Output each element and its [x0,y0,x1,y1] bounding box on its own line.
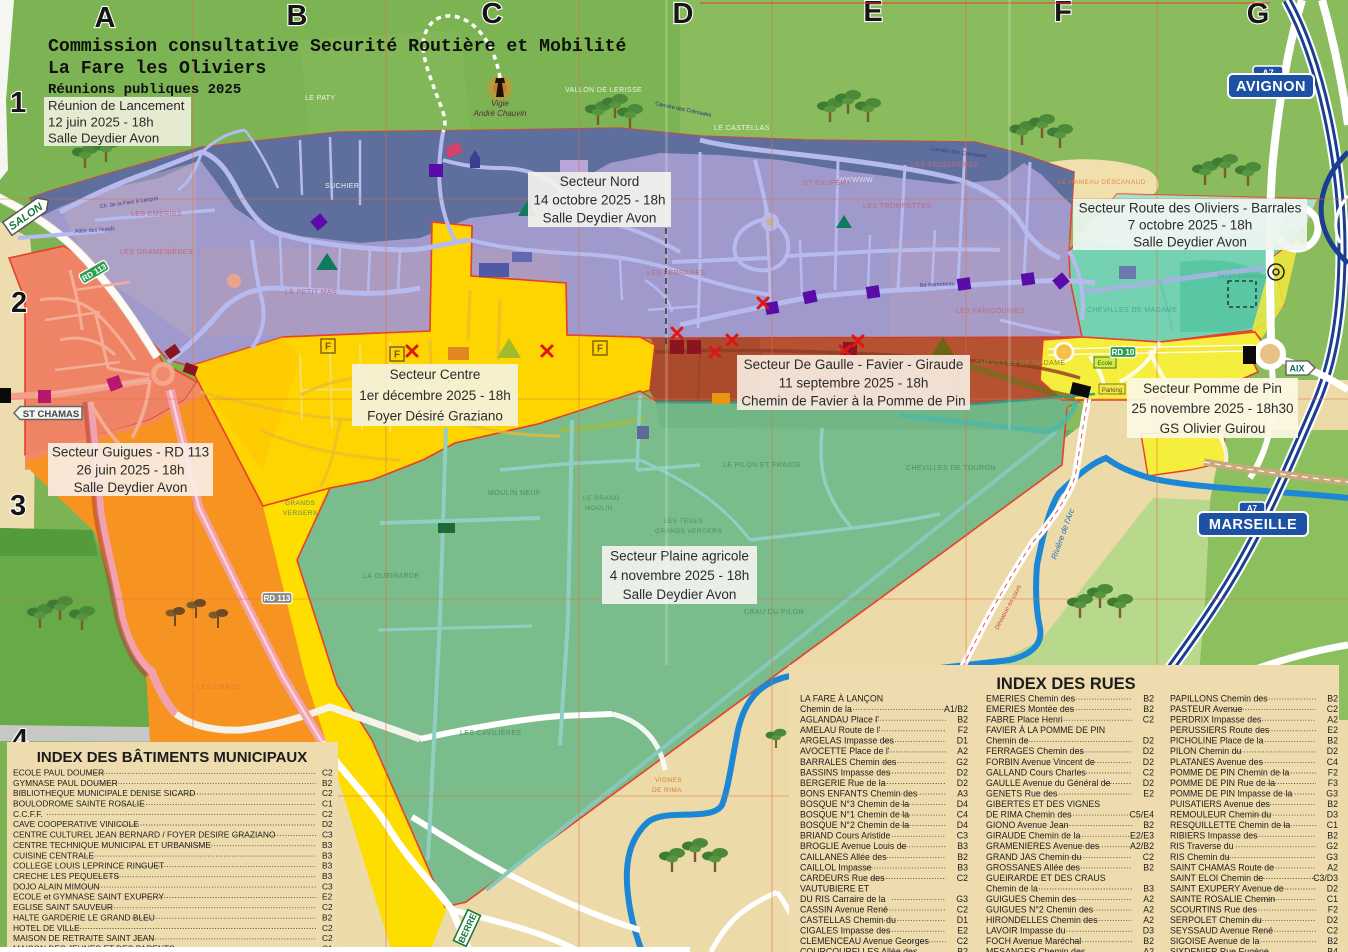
svg-text:LES CAVILIÈRES: LES CAVILIÈRES [460,728,522,737]
svg-text:F: F [394,350,400,361]
svg-text:Salle Deydier Avon: Salle Deydier Avon [623,587,737,602]
svg-text:C3/D3: C3/D3 [1313,873,1338,883]
svg-text:D4: D4 [957,820,968,830]
svg-text:C3: C3 [957,831,968,841]
svg-text:D: D [673,0,694,30]
svg-text:A2: A2 [957,746,968,756]
svg-text:GIONO Avenue Jean: GIONO Avenue Jean [986,820,1069,830]
svg-text:B2: B2 [1143,704,1154,714]
svg-text:14 octobre 2025 - 18h: 14 octobre 2025 - 18h [533,192,665,207]
svg-text:SAINT EXUPERY Avenue de: SAINT EXUPERY Avenue de [1170,883,1284,893]
svg-text:G: G [1247,0,1270,30]
svg-text:D2: D2 [1327,915,1338,925]
svg-text:VIGNES: VIGNES [655,777,682,784]
svg-text:B2: B2 [1143,862,1154,872]
svg-text:GENETS Rue des: GENETS Rue des [986,789,1058,799]
svg-text:C1: C1 [1327,820,1338,830]
svg-text:SIXDENIER Rue Eugène: SIXDENIER Rue Eugène [1170,947,1269,952]
svg-text:D2: D2 [1143,736,1154,746]
svg-text:RIBIERS Impasse des: RIBIERS Impasse des [1170,831,1258,841]
svg-text:EMERIES Chemin des: EMERIES Chemin des [986,694,1076,704]
svg-text:RIS Chemin du: RIS Chemin du [1170,852,1230,862]
svg-text:CAVE COOPERATIVE VINICOLE: CAVE COOPERATIVE VINICOLE [13,819,139,829]
svg-text:LE PILON ET FRAIOS: LE PILON ET FRAIOS [723,462,800,469]
svg-text:LA GUEIRARDE: LA GUEIRARDE [363,573,420,580]
svg-text:BOULODROME SAINTE ROSALIE: BOULODROME SAINTE ROSALIE [13,799,145,809]
svg-text:AGLANDAU Place l': AGLANDAU Place l' [800,715,879,725]
svg-text:F2: F2 [958,725,968,735]
svg-text:Secteur De Gaulle - Favier - G: Secteur De Gaulle - Favier - Giraude [744,357,964,372]
svg-text:LE GRAND: LE GRAND [583,495,619,502]
svg-text:Commission consultative Securi: Commission consultative Securité Routièr… [48,37,627,57]
svg-text:HOTEL DE VILLE: HOTEL DE VILLE [13,923,80,933]
svg-text:C2: C2 [322,902,333,912]
svg-text:Chemin de la: Chemin de la [986,883,1038,893]
svg-text:INDEX DES RUES: INDEX DES RUES [996,675,1135,693]
svg-text:GRANDS: GRANDS [285,500,315,507]
svg-text:B2: B2 [1327,799,1338,809]
svg-text:F3: F3 [1328,778,1338,788]
svg-text:GIBERTES ET DES VIGNES: GIBERTES ET DES VIGNES [986,799,1100,809]
svg-text:D2: D2 [322,819,333,829]
svg-text:LE CASTELLAS: LE CASTELLAS [714,125,770,132]
svg-text:C2: C2 [322,809,333,819]
svg-text:C3: C3 [322,830,333,840]
svg-text:BERGERIE Rue de la: BERGERIE Rue de la [800,778,886,788]
svg-text:FAVIER À LA POMME DE PIN: FAVIER À LA POMME DE PIN [986,725,1105,735]
svg-text:BOSQUE N°1 Chemin de la: BOSQUE N°1 Chemin de la [800,810,909,820]
svg-text:B2: B2 [1327,936,1338,946]
svg-text:REMOULEUR Chemin du: REMOULEUR Chemin du [1170,810,1271,820]
svg-text:F: F [325,342,331,353]
svg-text:C2: C2 [1327,704,1338,714]
svg-text:Secteur Centre: Secteur Centre [390,367,481,382]
svg-text:D1: D1 [957,915,968,925]
svg-text:BIBLIOTHEQUE MUNICIPALE DENISE: BIBLIOTHEQUE MUNICIPALE DENISE SICARD [13,788,195,798]
svg-text:C2: C2 [957,905,968,915]
svg-text:FERRAGES Chemin des: FERRAGES Chemin des [986,746,1084,756]
svg-text:Chemin de Favier à la Pomme de: Chemin de Favier à la Pomme de Pin [741,394,965,409]
svg-text:POMME DE PIN Rue de la: POMME DE PIN Rue de la [1170,778,1275,788]
svg-text:G3: G3 [1326,852,1338,862]
svg-text:CUISINE CENTRALE: CUISINE CENTRALE [13,850,94,860]
svg-text:La Fare les Oliviers: La Fare les Oliviers [48,59,266,79]
svg-text:B4: B4 [1327,947,1338,952]
svg-text:F: F [1054,0,1072,28]
svg-text:GIRAUDE Chemin de la: GIRAUDE Chemin de la [986,831,1080,841]
svg-text:EGLISE SAINT SAUVEUR: EGLISE SAINT SAUVEUR [13,902,113,912]
svg-text:HIRONDELLES Chemin des: HIRONDELLES Chemin des [986,915,1098,925]
svg-text:POMME DE PIN Chemin de la: POMME DE PIN Chemin de la [1170,767,1289,777]
svg-text:BROGLIE Avenue Louis de: BROGLIE Avenue Louis de [800,841,907,851]
svg-text:Réunions publiques 2025: Réunions publiques 2025 [48,82,241,98]
svg-text:B2: B2 [957,715,968,725]
svg-text:B2: B2 [322,912,333,922]
svg-text:CHEVILLES DE MADAME: CHEVILLES DE MADAME [975,360,1065,367]
svg-text:POMME DE PIN Impasse de la: POMME DE PIN Impasse de la [1170,789,1292,799]
svg-text:Foyer Désiré Graziano: Foyer Désiré Graziano [367,409,503,424]
svg-text:D2: D2 [957,767,968,777]
svg-text:C2: C2 [322,768,333,778]
svg-text:1er décembre 2025 - 18h: 1er décembre 2025 - 18h [359,388,511,403]
svg-text:GROSSANES Allée des: GROSSANES Allée des [986,862,1080,872]
svg-text:A2: A2 [1143,894,1154,904]
svg-text:LES GRAMENIÈRES: LES GRAMENIÈRES [120,247,193,256]
svg-text:B3: B3 [957,862,968,872]
svg-text:GRAMENIERES Avenue des: GRAMENIERES Avenue des [986,841,1100,851]
svg-text:BASSINS Impasse des: BASSINS Impasse des [800,767,891,777]
svg-text:RESQUILLETTE Chemin de la: RESQUILLETTE Chemin de la [1170,820,1290,830]
svg-text:C4: C4 [957,810,968,820]
svg-text:LES TROMPETTES: LES TROMPETTES [863,203,931,210]
svg-text:A1/B2: A1/B2 [944,704,968,714]
svg-text:INDEX DES BÂTIMENTS MUNICIPAUX: INDEX DES BÂTIMENTS MUNICIPAUX [37,748,308,766]
svg-text:CASSIN Avenue René: CASSIN Avenue René [800,905,888,915]
svg-text:CHEVILLES DE MADAME: CHEVILLES DE MADAME [1087,307,1177,314]
svg-text:C2: C2 [1143,715,1154,725]
svg-text:VERGERS: VERGERS [283,510,318,517]
svg-text:GUEIRARDE ET DES CRAUS: GUEIRARDE ET DES CRAUS [986,873,1106,883]
svg-text:DE RIMA: DE RIMA [652,787,682,794]
svg-text:4 novembre 2025 - 18h: 4 novembre 2025 - 18h [610,568,750,583]
svg-text:E: E [863,0,882,28]
svg-text:B3: B3 [322,840,333,850]
svg-text:PERUSSIERS Route des: PERUSSIERS Route des [1170,725,1270,735]
svg-text:B3: B3 [957,841,968,851]
svg-text:E2: E2 [957,926,968,936]
svg-text:CLEMENCEAU Avenue Georges: CLEMENCEAU Avenue Georges [800,936,930,946]
svg-text:A2: A2 [1143,947,1154,952]
svg-text:LES TROISTIÈRES: LES TROISTIÈRES [911,160,979,169]
svg-text:CRECHE LES PEQUELETS: CRECHE LES PEQUELETS [13,871,120,881]
svg-text:B2: B2 [1327,694,1338,704]
svg-text:PICHOLINE Place de la: PICHOLINE Place de la [1170,736,1263,746]
svg-text:G2: G2 [1326,841,1338,851]
svg-text:C2: C2 [1143,852,1154,862]
svg-text:André Chauvin: André Chauvin [473,109,527,118]
svg-text:A: A [95,2,116,34]
svg-text:C4: C4 [1327,757,1338,767]
svg-text:ST CHAMAS: ST CHAMAS [23,409,79,420]
svg-text:PASTEUR Avenue: PASTEUR Avenue [1170,704,1243,714]
svg-text:GRAND JAS Chemin du: GRAND JAS Chemin du [986,852,1081,862]
svg-text:D2: D2 [957,778,968,788]
svg-text:B3: B3 [322,850,333,860]
svg-text:BARRALES Chemin des: BARRALES Chemin des [800,757,897,767]
svg-text:LAVOIR Impasse du: LAVOIR Impasse du [986,926,1066,936]
svg-text:2: 2 [11,287,27,319]
svg-text:C5/E4: C5/E4 [1130,810,1155,820]
svg-text:LES CRAUS: LES CRAUS [197,684,240,691]
svg-text:AIX: AIX [1289,364,1304,374]
svg-text:3: 3 [10,490,26,522]
svg-text:B2: B2 [322,778,333,788]
svg-text:SAINT CHAMAS Route de: SAINT CHAMAS Route de [1170,862,1274,872]
svg-text:AMELAU Route de l': AMELAU Route de l' [800,725,881,735]
svg-text:Salle Deydier Avon: Salle Deydier Avon [543,211,657,226]
svg-text:CAILLANES Allée des: CAILLANES Allée des [800,852,887,862]
svg-text:LE HAMEAU DESCANAUD: LE HAMEAU DESCANAUD [1058,179,1146,186]
svg-text:COURCOURELLES Allée des: COURCOURELLES Allée des [800,947,918,952]
svg-text:B2: B2 [957,852,968,862]
svg-text:A2/B2: A2/B2 [1130,841,1154,851]
svg-text:COLLEGE LOUIS LEPRINCE RINGUET: COLLEGE LOUIS LEPRINCE RINGUET [13,861,164,871]
svg-text:D2: D2 [1143,746,1154,756]
svg-text:ECOLE et GYMNASE SAINT EXUPERY: ECOLE et GYMNASE SAINT EXUPERY [13,892,164,902]
svg-text:25 novembre 2025 - 18h30: 25 novembre 2025 - 18h30 [1131,401,1293,416]
svg-text:Ecole: Ecole [1097,361,1113,367]
svg-text:ST EXUPÉRY: ST EXUPÉRY [803,178,851,187]
svg-text:7 octobre 2025 - 18h: 7 octobre 2025 - 18h [1128,217,1253,232]
svg-text:Réunion de Lancement: Réunion de Lancement [48,98,185,113]
svg-text:PUISATIERS Avenue des: PUISATIERS Avenue des [1170,799,1271,809]
svg-text:SERPOLET Chemin du: SERPOLET Chemin du [1170,915,1262,925]
svg-text:E2: E2 [1143,789,1154,799]
svg-text:BONS ENFANTS Chemin des: BONS ENFANTS Chemin des [800,789,918,799]
svg-text:Secteur Nord: Secteur Nord [560,174,640,189]
svg-text:Salle Deydier Avon: Salle Deydier Avon [1133,234,1247,249]
svg-text:C.C.F.F.: C.C.F.F. [13,809,43,819]
svg-text:LES FARIGOURIES: LES FARIGOURIES [956,308,1025,315]
svg-text:VALLON DE LERISSE: VALLON DE LERISSE [565,87,642,94]
svg-text:C1: C1 [322,799,333,809]
svg-text:D3: D3 [1327,810,1338,820]
svg-text:B3: B3 [1143,883,1154,893]
svg-text:D2: D2 [1143,778,1154,788]
svg-text:D4: D4 [957,799,968,809]
svg-text:Secteur Pomme de Pin: Secteur Pomme de Pin [1143,381,1282,396]
svg-text:BOSQUE N°3 Chemin de la: BOSQUE N°3 Chemin de la [800,799,909,809]
svg-text:C2: C2 [1143,767,1154,777]
svg-text:CARDEURS Rue des: CARDEURS Rue des [800,873,885,883]
svg-text:SAINTE ROSALIE Chemin: SAINTE ROSALIE Chemin [1170,894,1275,904]
svg-text:C: C [482,0,503,30]
svg-text:A3: A3 [957,789,968,799]
svg-text:MESANGES Chemin des: MESANGES Chemin des [986,947,1086,952]
svg-text:Parking: Parking [1102,388,1122,394]
svg-text:A2: A2 [1143,915,1154,925]
svg-text:CENTRE CULTUREL JEAN BERNARD /: CENTRE CULTUREL JEAN BERNARD / FOYER DES… [13,830,276,840]
svg-text:FORBIN Avenue Vincent de: FORBIN Avenue Vincent de [986,757,1095,767]
svg-text:SEYSSAUD Avenue René: SEYSSAUD Avenue René [1170,926,1273,936]
svg-text:CASTELLAS Chemin du: CASTELLAS Chemin du [800,915,896,925]
svg-text:GUIGUES Chemin des: GUIGUES Chemin des [986,894,1077,904]
svg-text:SCOURTINS Rue des: SCOURTINS Rue des [1170,905,1257,915]
svg-text:LE PETIT MAS: LE PETIT MAS [285,289,337,296]
svg-text:MOULIN NEUF: MOULIN NEUF [488,490,541,497]
svg-text:AVOCETTE Place de l': AVOCETTE Place de l' [800,746,890,756]
svg-text:MAISON DE RETRAITE SAINT JEAN: MAISON DE RETRAITE SAINT JEAN [13,933,154,943]
svg-text:G3: G3 [1326,789,1338,799]
svg-text:Secteur Guigues - RD 113: Secteur Guigues - RD 113 [52,445,209,460]
svg-text:LE PATY: LE PATY [305,95,336,102]
svg-text:A2: A2 [1327,715,1338,725]
svg-text:Vigie: Vigie [491,99,509,108]
svg-text:A2: A2 [1327,862,1338,872]
svg-text:LES TESES: LES TESES [664,518,703,525]
svg-text:F2: F2 [1328,905,1338,915]
svg-text:C3: C3 [322,881,333,891]
svg-text:PLATANES Avenue des: PLATANES Avenue des [1170,757,1264,767]
svg-text:LES EMERIES: LES EMERIES [131,211,182,218]
svg-text:B3: B3 [322,871,333,881]
svg-text:CAILLOL Impasse: CAILLOL Impasse [800,862,872,872]
svg-text:GYMNASE PAUL DOUMER: GYMNASE PAUL DOUMER [13,778,118,788]
svg-text:B: B [287,0,308,32]
svg-text:GAULLE Avenue du Général de: GAULLE Avenue du Général de [986,778,1111,788]
svg-text:GS Olivier Guirou: GS Olivier Guirou [1160,421,1266,436]
svg-text:SUCHIER: SUCHIER [325,183,359,190]
svg-text:PERDRIX Impasse des: PERDRIX Impasse des [1170,715,1262,725]
svg-text:D2: D2 [1327,883,1338,893]
svg-text:F: F [597,344,603,355]
svg-text:CENTRE TECHNIQUE MUNICIPAL ET: CENTRE TECHNIQUE MUNICIPAL ET URBANISME [13,840,211,850]
svg-text:Secteur Route des Oliviers - B: Secteur Route des Oliviers - Barrales [1079,200,1302,215]
svg-text:RIS Traverse du: RIS Traverse du [1170,841,1234,851]
svg-text:B2: B2 [957,947,968,952]
svg-text:11 septembre 2025 - 18h: 11 septembre 2025 - 18h [779,375,929,390]
svg-text:Secteur Plaine agricole: Secteur Plaine agricole [610,549,749,564]
svg-text:Chemin de: Chemin de [986,736,1029,746]
svg-text:Salle Deydier Avon: Salle Deydier Avon [74,480,188,495]
svg-text:CIGALES Impasse des: CIGALES Impasse des [800,926,891,936]
svg-text:GALLAND Cours Charles: GALLAND Cours Charles [986,767,1086,777]
svg-text:E2/E3: E2/E3 [1130,831,1154,841]
svg-text:PAPILLONS Chemin des: PAPILLONS Chemin des [1170,694,1268,704]
svg-text:B2: B2 [1143,820,1154,830]
svg-text:BOSQUE N°2 Chemin de la: BOSQUE N°2 Chemin de la [800,820,909,830]
svg-text:AVIGNON: AVIGNON [1236,79,1306,95]
svg-text:26 juin 2025 - 18h: 26 juin 2025 - 18h [76,462,184,477]
svg-text:D2: D2 [1327,746,1338,756]
svg-text:C2: C2 [1327,926,1338,936]
svg-text:RD 113: RD 113 [264,594,291,603]
svg-text:DU RIS Carraire de la: DU RIS Carraire de la [800,894,886,904]
svg-text:G3: G3 [956,894,968,904]
svg-text:E2: E2 [1327,725,1338,735]
svg-text:D2: D2 [1143,757,1154,767]
svg-text:B2: B2 [1143,936,1154,946]
svg-text:HALTE GARDERIE LE GRAND BLEU: HALTE GARDERIE LE GRAND BLEU [13,912,155,922]
svg-text:B2: B2 [1327,736,1338,746]
svg-text:G2: G2 [956,757,968,767]
svg-text:Salle Deydier Avon: Salle Deydier Avon [48,131,159,146]
svg-text:12 juin 2025 - 18h: 12 juin 2025 - 18h [48,114,154,129]
svg-text:RD 10: RD 10 [1112,348,1135,357]
svg-text:D3: D3 [1143,926,1154,936]
svg-text:Chemin de la: Chemin de la [800,704,852,714]
svg-text:C2: C2 [322,788,333,798]
svg-text:CRAU DU PILON: CRAU DU PILON [744,609,804,616]
svg-text:SIGOISE Avenue de la: SIGOISE Avenue de la [1170,936,1259,946]
svg-text:C2: C2 [322,933,333,943]
svg-text:PILON Chemin du: PILON Chemin du [1170,746,1241,756]
svg-text:BRIAND Cours Aristide: BRIAND Cours Aristide [800,831,891,841]
svg-text:B2: B2 [1327,831,1338,841]
svg-text:C2: C2 [957,936,968,946]
svg-text:DOJO ALAIN MIMOUN: DOJO ALAIN MIMOUN [13,881,100,891]
svg-text:FABRE Place Henri: FABRE Place Henri [986,715,1063,725]
svg-text:ZA LES BARRALES: ZA LES BARRALES [1217,274,1267,280]
svg-text:C1: C1 [1327,894,1338,904]
svg-text:ECOLE PAUL DOUMER: ECOLE PAUL DOUMER [13,768,104,778]
svg-text:MOULIN: MOULIN [585,505,613,512]
svg-text:C2: C2 [322,923,333,933]
svg-text:A2: A2 [1143,905,1154,915]
svg-text:CHEVILLES DE TOURON: CHEVILLES DE TOURON [906,465,996,472]
svg-text:1: 1 [10,87,26,119]
svg-text:LES FERRAGES: LES FERRAGES [647,270,705,277]
svg-text:C2: C2 [957,873,968,883]
svg-text:MARSEILLE: MARSEILLE [1209,517,1297,533]
svg-text:B2: B2 [1143,694,1154,704]
svg-text:EMERIES Montée des: EMERIES Montée des [986,704,1075,714]
svg-text:ARGELAS Impasse des: ARGELAS Impasse des [800,736,894,746]
svg-text:LA FARE À LANÇON: LA FARE À LANÇON [800,694,883,704]
svg-text:F2: F2 [1328,767,1338,777]
svg-text:D1: D1 [957,736,968,746]
svg-text:E2: E2 [322,892,333,902]
svg-text:VAUTUBIERE ET: VAUTUBIERE ET [800,883,870,893]
svg-text:FOCH Avenue Maréchal: FOCH Avenue Maréchal [986,936,1081,946]
svg-text:SAINT ELOI Chemin de: SAINT ELOI Chemin de [1170,873,1263,883]
svg-text:B3: B3 [322,861,333,871]
svg-text:GUIGUES N°2 Chemin des: GUIGUES N°2 Chemin des [986,905,1094,915]
svg-text:DE RIMA Chemin des: DE RIMA Chemin des [986,810,1072,820]
